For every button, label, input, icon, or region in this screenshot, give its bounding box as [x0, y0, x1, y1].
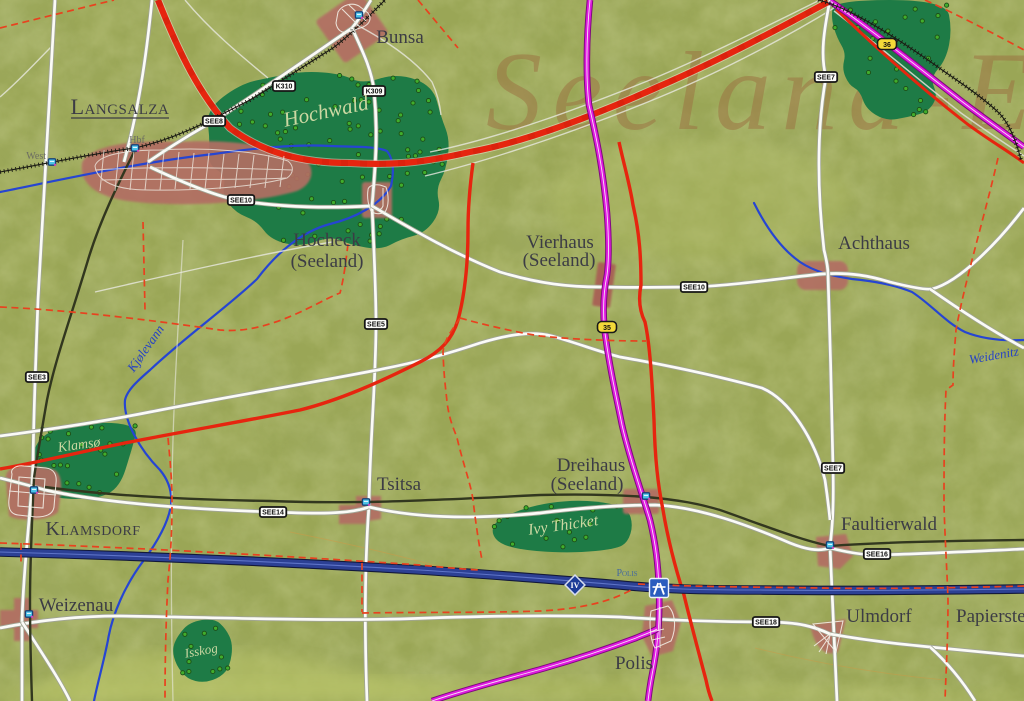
- svg-text:K310: K310: [276, 83, 293, 90]
- svg-text:Achthaus: Achthaus: [838, 233, 910, 254]
- svg-text:SEE10: SEE10: [683, 284, 705, 291]
- svg-text:Ulmdorf: Ulmdorf: [846, 606, 912, 627]
- svg-text:SEE10: SEE10: [230, 197, 252, 204]
- svg-text:Polis: Polis: [616, 568, 637, 579]
- svg-text:Bunsa: Bunsa: [376, 27, 424, 48]
- svg-text:Dreihaus: Dreihaus: [557, 455, 626, 476]
- svg-text:36: 36: [883, 42, 891, 49]
- svg-text:(Seeland): (Seeland): [551, 474, 624, 495]
- svg-text:K309: K309: [366, 88, 383, 95]
- svg-text:(Seeland): (Seeland): [523, 250, 596, 271]
- svg-text:SEE8: SEE8: [205, 118, 223, 125]
- svg-text:SEE7: SEE7: [817, 74, 835, 81]
- svg-text:SEE7: SEE7: [824, 465, 842, 472]
- svg-text:Hbf: Hbf: [129, 135, 145, 146]
- svg-text:Klamsdorf: Klamsdorf: [45, 518, 140, 540]
- svg-text:Tsitsa: Tsitsa: [377, 474, 422, 495]
- svg-text:SEE3: SEE3: [28, 374, 46, 381]
- svg-text:Langsalza: Langsalza: [71, 94, 170, 119]
- svg-text:SEE16: SEE16: [866, 551, 888, 558]
- svg-text:Weizenau: Weizenau: [39, 595, 114, 616]
- svg-text:(Seeland): (Seeland): [291, 251, 364, 272]
- svg-text:West: West: [26, 151, 46, 162]
- svg-text:Hocheck: Hocheck: [293, 230, 361, 251]
- svg-text:IV: IV: [571, 581, 580, 590]
- svg-text:Faultierwald: Faultierwald: [841, 514, 938, 535]
- svg-text:SEE14: SEE14: [262, 509, 284, 516]
- svg-text:SEE5: SEE5: [367, 321, 385, 328]
- svg-text:Papierstedt: Papierstedt: [956, 606, 1024, 627]
- svg-text:35: 35: [603, 325, 611, 332]
- svg-text:SEE18: SEE18: [755, 619, 777, 626]
- svg-text:Polis: Polis: [615, 653, 653, 674]
